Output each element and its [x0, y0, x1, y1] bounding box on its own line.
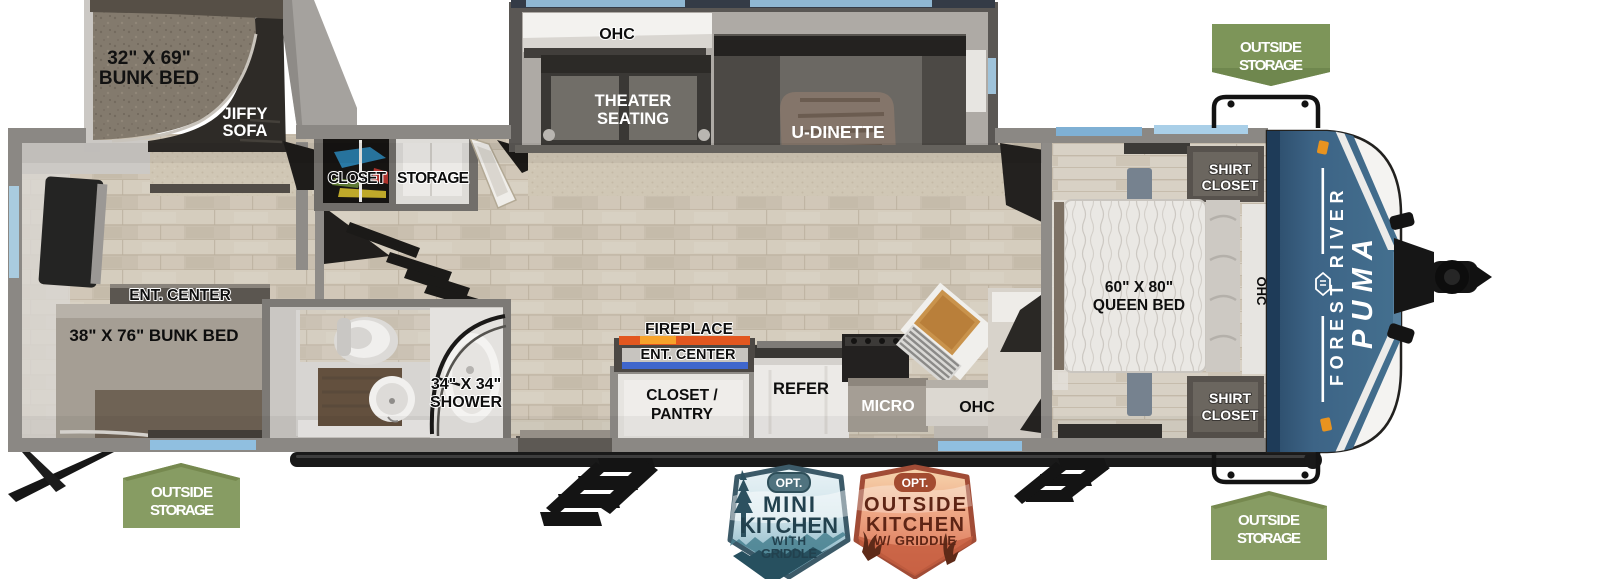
svg-text:32" X 69": 32" X 69" — [107, 48, 191, 69]
svg-text:SHOWER: SHOWER — [430, 394, 502, 411]
svg-text:CLOSET: CLOSET — [1202, 407, 1259, 423]
svg-text:SHIRT: SHIRT — [1209, 161, 1251, 177]
svg-text:OPT.: OPT. — [902, 476, 929, 490]
svg-text:JIFFY: JIFFY — [223, 105, 268, 123]
svg-text:STORAGE: STORAGE — [1239, 57, 1303, 74]
svg-text:OUTSIDE: OUTSIDE — [151, 484, 213, 501]
svg-text:CLOSET: CLOSET — [1202, 177, 1259, 193]
svg-text:PANTRY: PANTRY — [651, 406, 714, 423]
svg-text:SOFA: SOFA — [223, 122, 268, 140]
svg-text:PUMA: PUMA — [1347, 237, 1379, 349]
svg-text:OPT.: OPT. — [776, 476, 803, 490]
svg-text:FIREPLACE: FIREPLACE — [645, 321, 733, 338]
svg-text:ENT. CENTER: ENT. CENTER — [640, 347, 736, 363]
svg-text:BUNK BED: BUNK BED — [99, 68, 199, 89]
svg-text:STORAGE: STORAGE — [1237, 530, 1301, 547]
svg-text:CLOSET /: CLOSET / — [646, 387, 718, 404]
svg-text:REFER: REFER — [773, 380, 829, 398]
svg-text:U-DINETTE: U-DINETTE — [791, 122, 884, 142]
svg-text:OHC: OHC — [959, 399, 995, 416]
svg-text:THEATER: THEATER — [595, 92, 672, 110]
svg-text:ENT. CENTER: ENT. CENTER — [129, 287, 231, 304]
svg-text:OUTSIDE: OUTSIDE — [1240, 39, 1302, 56]
svg-text:MICRO: MICRO — [861, 398, 914, 415]
svg-text:STORAGE: STORAGE — [397, 170, 469, 187]
svg-text:SEATING: SEATING — [597, 110, 669, 128]
svg-text:OHC: OHC — [1254, 277, 1269, 307]
svg-text:CLOSET: CLOSET — [328, 170, 387, 187]
svg-text:34" X 34": 34" X 34" — [431, 376, 501, 393]
svg-text:60" X 80": 60" X 80" — [1105, 279, 1173, 296]
svg-text:SHIRT: SHIRT — [1209, 390, 1251, 406]
svg-text:38" X 76" BUNK BED: 38" X 76" BUNK BED — [69, 326, 238, 345]
svg-text:STORAGE: STORAGE — [150, 502, 214, 519]
svg-text:W/ GRIDDLE: W/ GRIDDLE — [874, 533, 956, 548]
svg-text:OHC: OHC — [599, 26, 635, 43]
svg-text:QUEEN BED: QUEEN BED — [1093, 297, 1185, 314]
svg-text:GRIDDLE: GRIDDLE — [761, 546, 817, 561]
svg-text:OUTSIDE: OUTSIDE — [1238, 512, 1300, 529]
